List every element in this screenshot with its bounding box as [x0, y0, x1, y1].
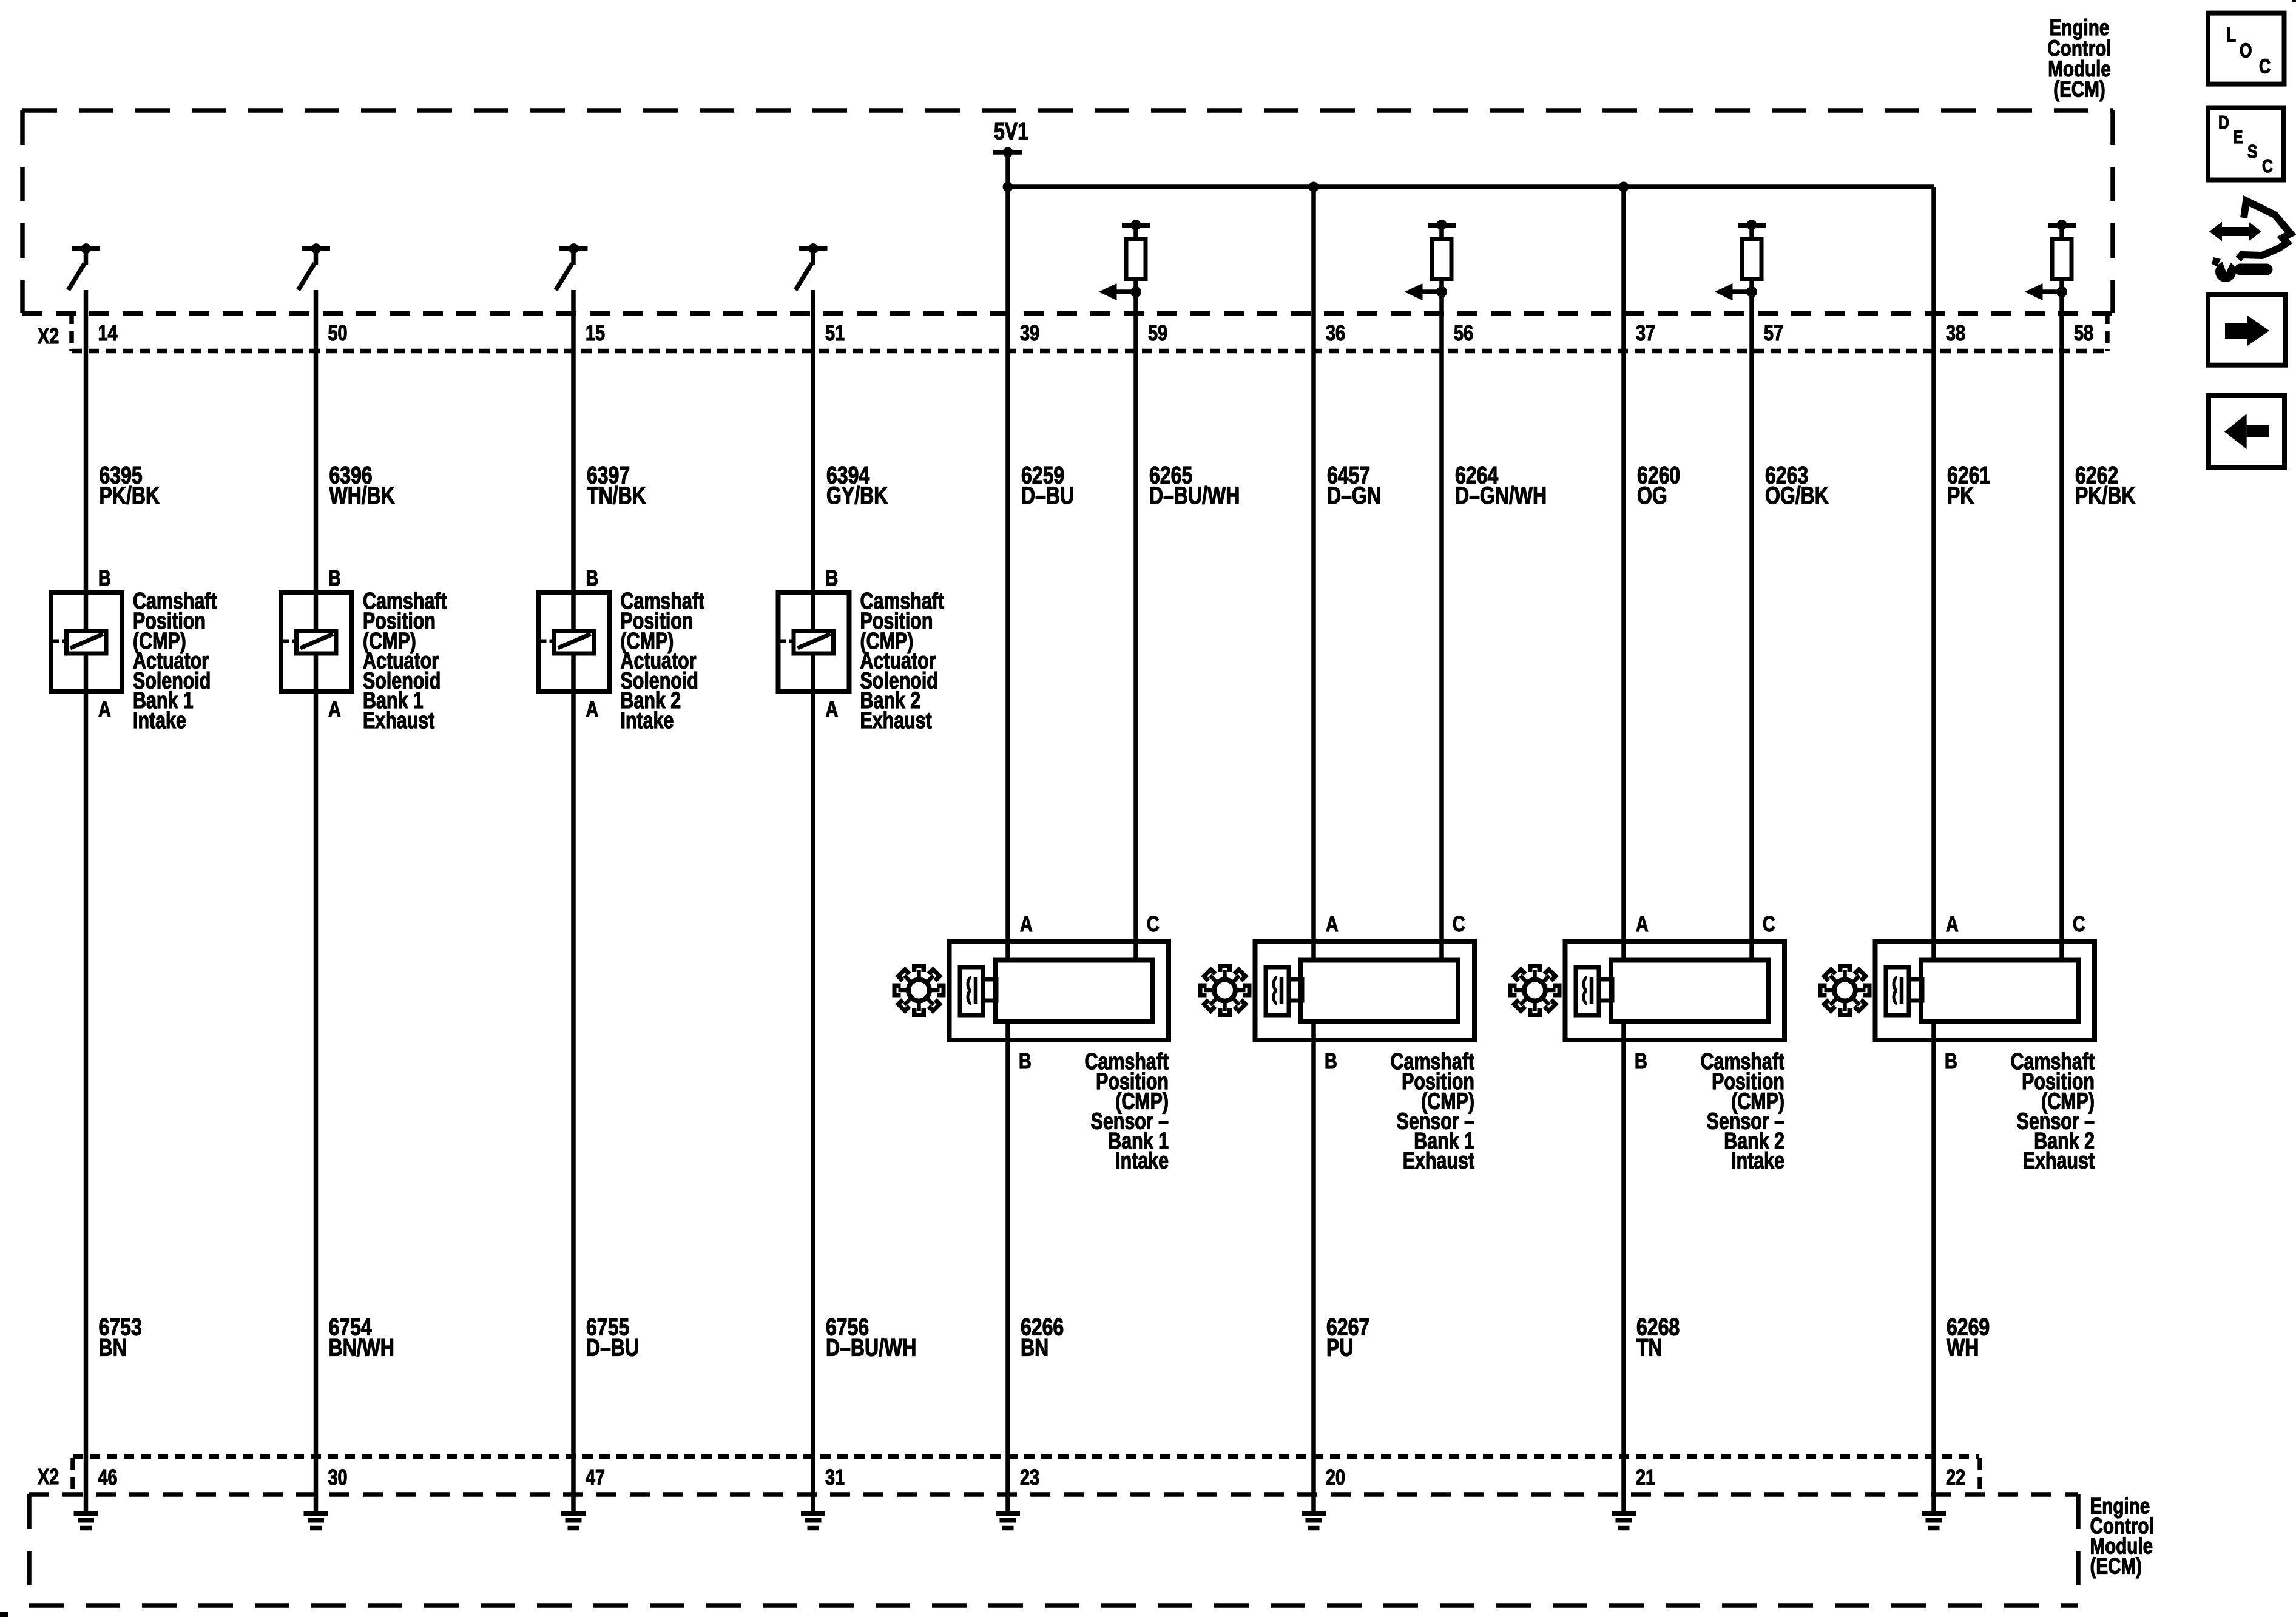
svg-text:(ECM): (ECM) [2090, 1554, 2142, 1579]
svg-text:(ECM): (ECM) [2053, 78, 2105, 103]
svg-text:46: 46 [98, 1465, 118, 1490]
svg-text:Exhaust: Exhaust [2023, 1149, 2095, 1174]
svg-text:D–BU/WH: D–BU/WH [1149, 482, 1240, 509]
svg-text:A: A [98, 697, 111, 721]
svg-text:B: B [328, 565, 341, 590]
svg-text:X2: X2 [38, 1464, 59, 1489]
svg-text:36: 36 [1326, 320, 1345, 345]
svg-text:57: 57 [1764, 320, 1783, 345]
svg-text:OG: OG [1637, 482, 1667, 509]
svg-text:D–GN: D–GN [1327, 482, 1381, 509]
svg-text:PK: PK [1947, 482, 1974, 509]
svg-text:PK/BK: PK/BK [100, 482, 160, 509]
svg-text:A: A [826, 697, 839, 721]
svg-text:WH: WH [1947, 1334, 1979, 1361]
svg-text:BN: BN [1021, 1334, 1048, 1361]
svg-text:58: 58 [2074, 320, 2093, 345]
svg-text:A: A [1020, 911, 1033, 936]
svg-text:A: A [1636, 911, 1649, 936]
svg-text:51: 51 [825, 320, 845, 345]
svg-text:A: A [328, 697, 341, 721]
svg-text:B: B [1019, 1048, 1032, 1073]
svg-text:Intake: Intake [133, 708, 186, 734]
svg-text:Exhaust: Exhaust [860, 708, 933, 734]
svg-text:23: 23 [1020, 1465, 1039, 1490]
svg-text:14: 14 [98, 320, 118, 345]
svg-text:D–BU: D–BU [1021, 482, 1074, 509]
svg-text:OG/BK: OG/BK [1765, 482, 1829, 509]
svg-text:Exhaust: Exhaust [1403, 1149, 1475, 1174]
svg-text:B: B [98, 565, 111, 590]
svg-text:C: C [2259, 56, 2271, 78]
svg-text:E: E [2233, 126, 2243, 147]
svg-text:O: O [2240, 40, 2252, 62]
svg-text:21: 21 [1636, 1465, 1655, 1490]
svg-text:B: B [1945, 1048, 1957, 1073]
svg-text:56: 56 [1454, 320, 1473, 345]
svg-text:Intake: Intake [1731, 1149, 1784, 1174]
svg-text:B: B [826, 565, 839, 590]
svg-text:D–GN/WH: D–GN/WH [1455, 482, 1547, 509]
svg-text:37: 37 [1636, 320, 1655, 345]
svg-text:31: 31 [825, 1465, 845, 1490]
svg-text:C: C [2262, 155, 2273, 176]
svg-text:PK/BK: PK/BK [2075, 482, 2136, 509]
svg-text:A: A [1326, 911, 1339, 936]
svg-text:B: B [1325, 1048, 1337, 1073]
svg-text:30: 30 [328, 1465, 348, 1490]
svg-text:BN/WH: BN/WH [329, 1334, 394, 1361]
svg-text:Intake: Intake [1115, 1149, 1169, 1174]
svg-text:BN: BN [99, 1334, 127, 1361]
svg-text:59: 59 [1148, 320, 1167, 345]
svg-text:Exhaust: Exhaust [363, 708, 435, 734]
svg-text:TN/BK: TN/BK [587, 482, 646, 509]
svg-text:C: C [1453, 911, 1465, 936]
svg-text:GY/BK: GY/BK [826, 482, 888, 509]
svg-text:38: 38 [1946, 320, 1965, 345]
svg-text:20: 20 [1326, 1465, 1345, 1490]
svg-text:15: 15 [586, 320, 605, 345]
svg-text:50: 50 [328, 320, 348, 345]
svg-text:D–BU: D–BU [586, 1334, 639, 1361]
svg-text:S: S [2247, 141, 2258, 161]
svg-text:B: B [1635, 1048, 1647, 1073]
svg-text:X2: X2 [38, 323, 59, 348]
svg-text:D: D [2218, 112, 2229, 132]
svg-text:5V1: 5V1 [994, 117, 1028, 144]
svg-text:22: 22 [1946, 1465, 1965, 1490]
svg-text:WH/BK: WH/BK [329, 482, 395, 509]
svg-text:TN: TN [1636, 1334, 1663, 1361]
svg-text:B: B [586, 565, 599, 590]
svg-text:47: 47 [586, 1465, 605, 1490]
svg-text:39: 39 [1020, 320, 1039, 345]
svg-text:C: C [1763, 911, 1775, 936]
svg-text:C: C [2073, 911, 2085, 936]
svg-text:D–BU/WH: D–BU/WH [826, 1334, 916, 1361]
svg-text:Intake: Intake [621, 708, 674, 734]
svg-text:PU: PU [1326, 1334, 1353, 1361]
svg-text:C: C [1147, 911, 1160, 936]
svg-text:A: A [1946, 911, 1959, 936]
svg-text:A: A [586, 697, 599, 721]
svg-text:L: L [2226, 24, 2236, 46]
